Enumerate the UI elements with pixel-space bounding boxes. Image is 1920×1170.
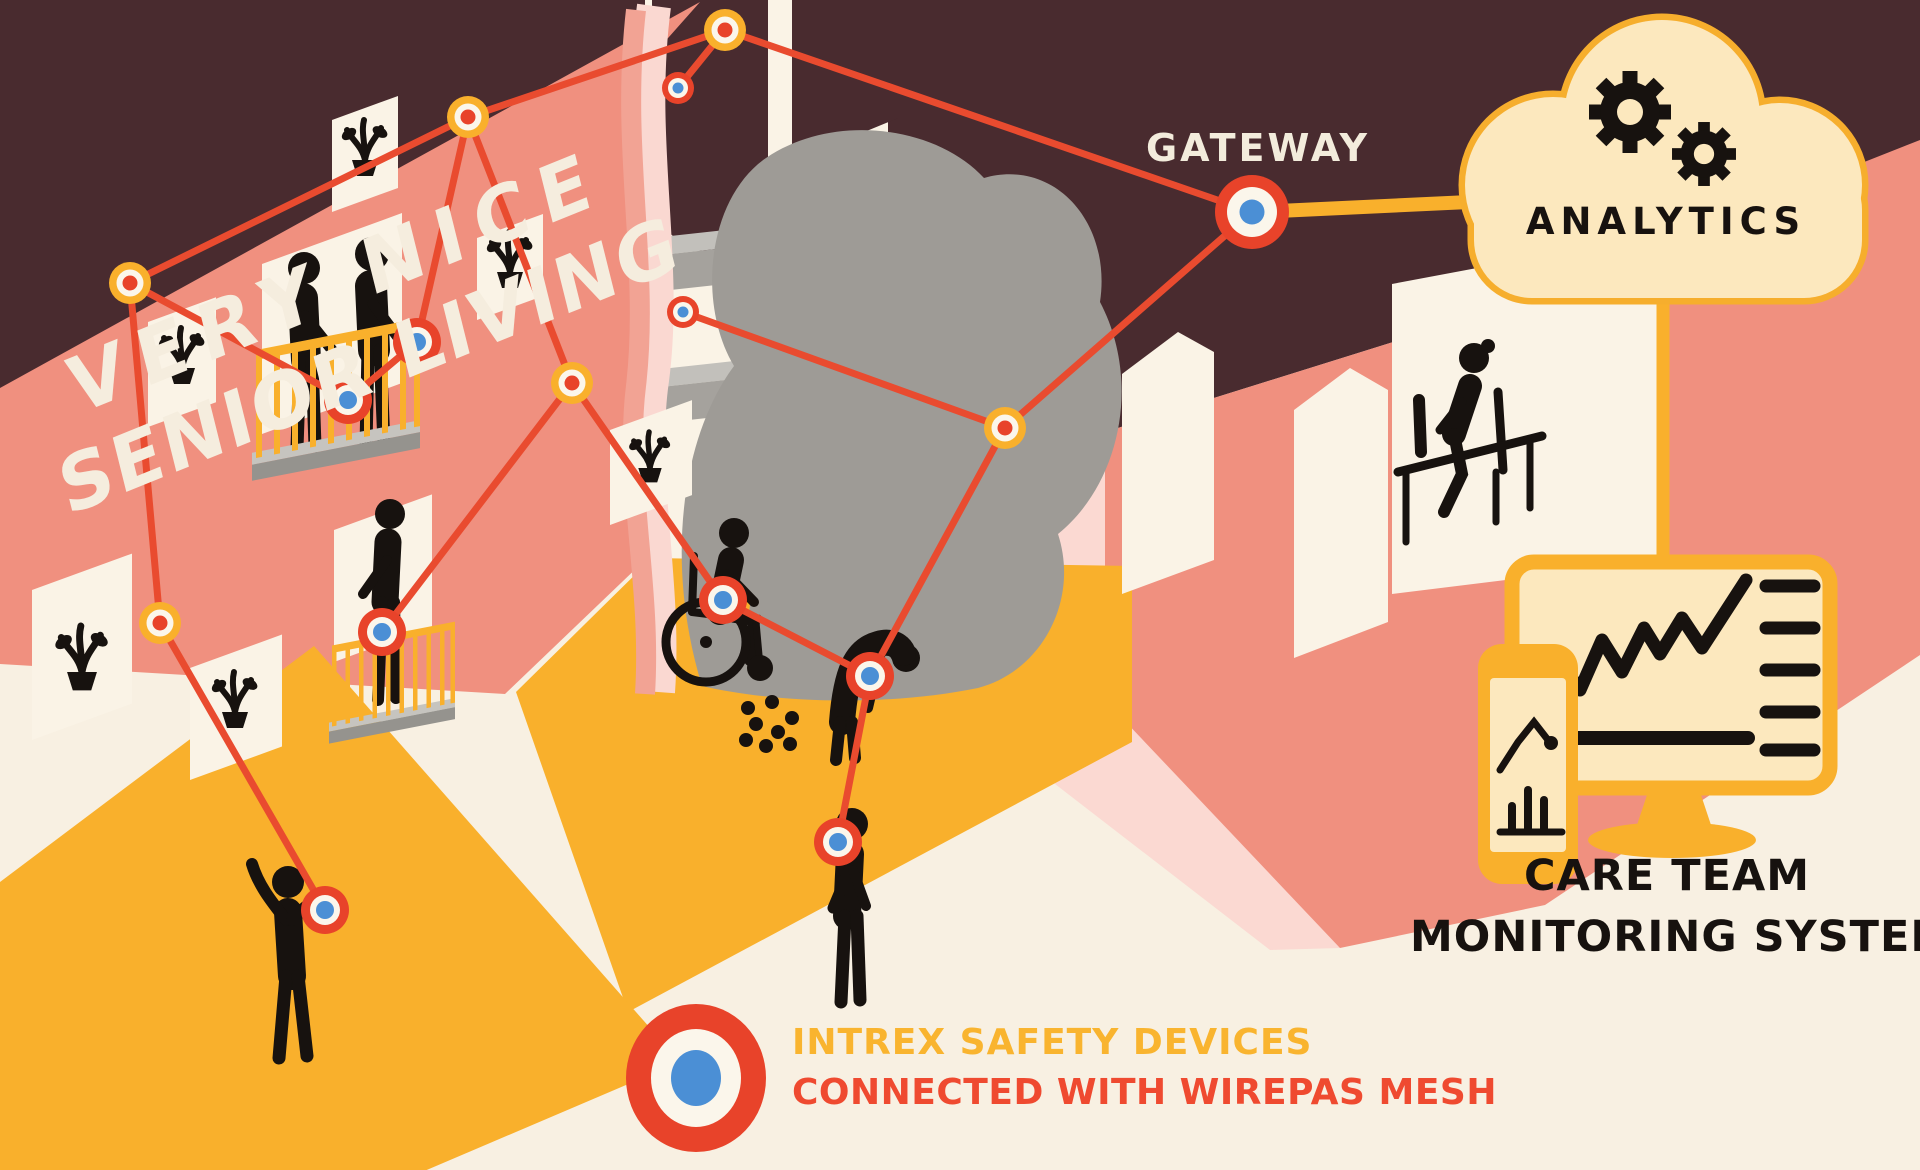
window-pentagon xyxy=(1122,332,1214,594)
gateway-label: GATEWAY xyxy=(1088,126,1428,170)
safety-device-node-B2 xyxy=(667,296,699,328)
analytics-label: ANALYTICS xyxy=(1488,200,1844,243)
anchor-node-L xyxy=(984,407,1026,449)
anchor-node-C xyxy=(447,96,489,138)
legend-line1: INTREX SAFETY DEVICES xyxy=(792,1022,1312,1063)
gateway-node-GW xyxy=(1215,175,1289,249)
anchor-node-A xyxy=(704,9,746,51)
care-team-line1: CARE TEAM xyxy=(1410,846,1920,907)
illustration-canvas xyxy=(0,0,1920,1170)
anchor-node-H xyxy=(139,602,181,644)
safety-device-node-I xyxy=(358,608,406,656)
infographic-scene: VERY NICE SENIOR LIVING GATEWAY ANALYTIC… xyxy=(0,0,1920,1170)
window-pentagon xyxy=(1294,368,1388,658)
legend-device-icon xyxy=(626,1004,766,1152)
safety-device-node-J xyxy=(699,576,747,624)
care-team-label: CARE TEAM MONITORING SYSTEM xyxy=(1410,846,1920,968)
legend-line2: CONNECTED WITH WIREPAS MESH xyxy=(792,1072,1497,1113)
safety-device-node-M xyxy=(814,818,862,866)
gear-icon xyxy=(1589,71,1671,153)
safety-device-node-N xyxy=(301,886,349,934)
safety-device-node-K xyxy=(846,652,894,700)
care-team-line2: MONITORING SYSTEM xyxy=(1410,907,1920,968)
gear-icon xyxy=(1672,122,1736,186)
safety-device-node-B xyxy=(662,72,694,104)
anchor-node-D xyxy=(109,262,151,304)
anchor-node-G xyxy=(551,362,593,404)
